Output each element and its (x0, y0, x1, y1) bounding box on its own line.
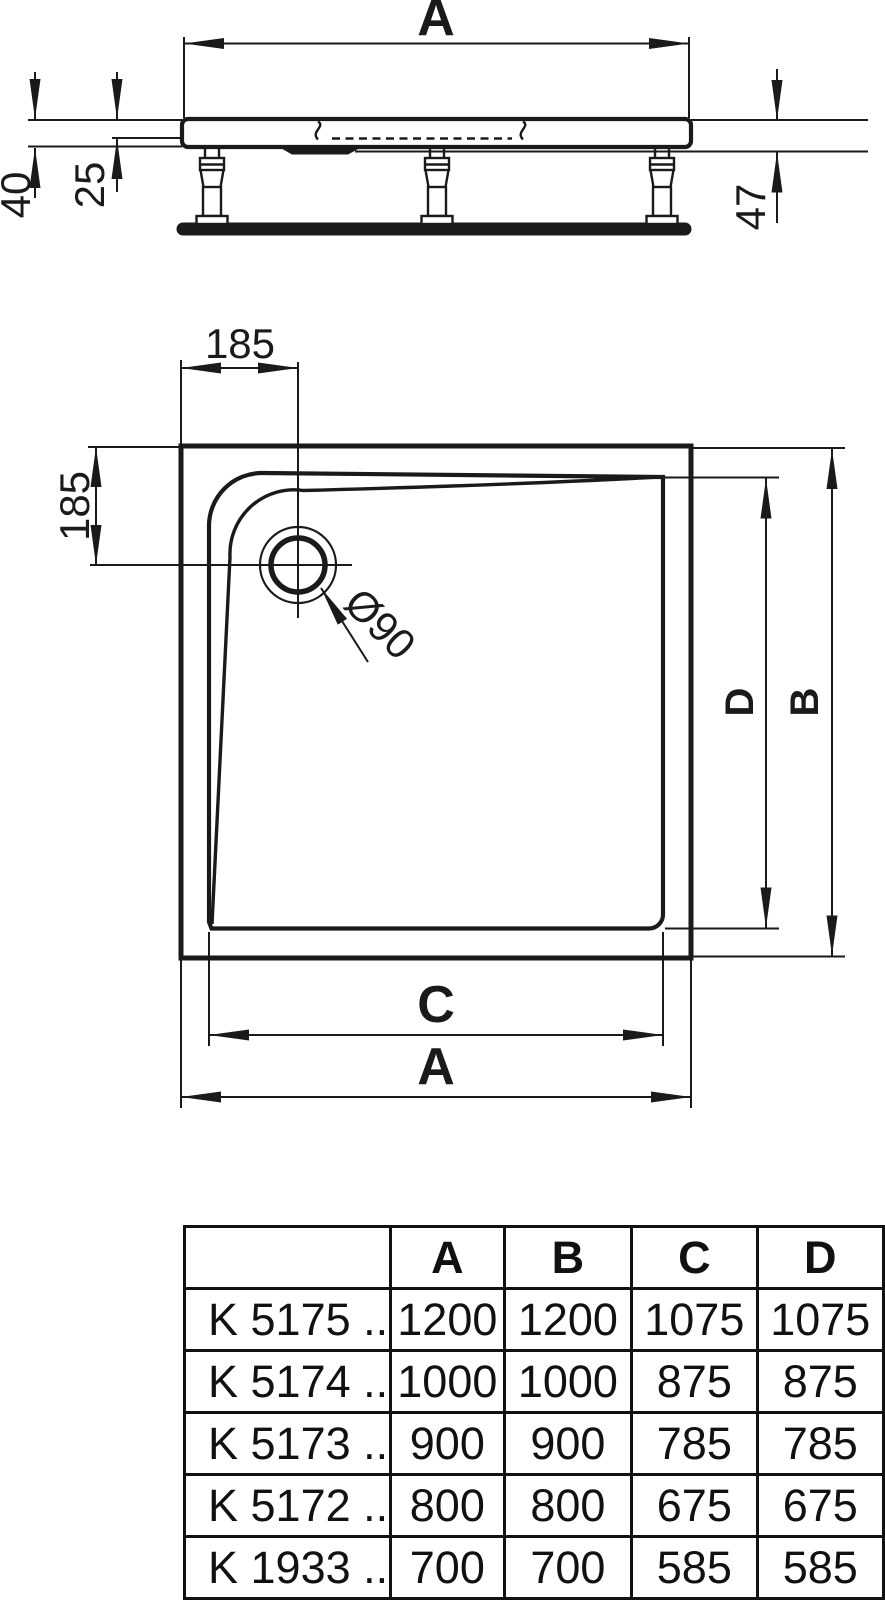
value-cell: 700 (390, 1537, 504, 1599)
tray-inner-rim (209, 473, 663, 929)
table-header-row: A B C D (185, 1227, 884, 1289)
tray-section-outline (182, 119, 691, 147)
value-cell: 875 (632, 1351, 757, 1413)
break-mark (316, 122, 321, 140)
header-A: A (390, 1227, 504, 1289)
value-cell: 1075 (632, 1289, 757, 1351)
value-cell: 785 (632, 1413, 757, 1475)
value-cell: 675 (632, 1475, 757, 1537)
dim-label-drain-diameter: Ø90 (336, 579, 425, 668)
header-C: C (632, 1227, 757, 1289)
value-cell: 585 (757, 1537, 883, 1599)
value-cell: 800 (504, 1475, 631, 1537)
header-D: D (757, 1227, 883, 1289)
model-cell: K 5174 .. (185, 1351, 391, 1413)
value-cell: 1000 (390, 1351, 504, 1413)
dim-label-40: 40 (0, 172, 39, 219)
value-cell: 1200 (390, 1289, 504, 1351)
dimension-table: A B C D K 5175 .. 1200 1200 1075 1075 K … (183, 1225, 885, 1600)
dim-label-185-left: 185 (51, 471, 98, 541)
adjustable-foot (647, 147, 678, 224)
dim-label-A: A (417, 0, 455, 47)
table-row: K 5174 .. 1000 1000 875 875 (185, 1351, 884, 1413)
value-cell: 675 (757, 1475, 883, 1537)
dim-label-B: B (783, 688, 827, 717)
table-row: K 5175 .. 1200 1200 1075 1075 (185, 1289, 884, 1351)
header-model (185, 1227, 391, 1289)
value-cell: 875 (757, 1351, 883, 1413)
dim-label-47: 47 (727, 184, 774, 231)
model-cell: K 5175 .. (185, 1289, 391, 1351)
model-cell: K 5173 .. (185, 1413, 391, 1475)
value-cell: 1000 (504, 1351, 631, 1413)
plan-view: 185 185 Ø90 D B C A (51, 320, 845, 1108)
header-B: B (504, 1227, 631, 1289)
value-cell: 700 (504, 1537, 631, 1599)
tray-outer-edge (181, 446, 691, 958)
adjustable-foot (197, 147, 228, 224)
value-cell: 900 (390, 1413, 504, 1475)
dim-label-185-top: 185 (205, 320, 275, 367)
model-cell: K 1933 .. (185, 1537, 391, 1599)
dim-label-25: 25 (66, 162, 113, 209)
value-cell: 785 (757, 1413, 883, 1475)
dim-label-A-plan: A (417, 1038, 455, 1096)
dim-label-D: D (718, 688, 762, 717)
model-cell: K 5172 .. (185, 1475, 391, 1537)
table-row: K 5173 .. 900 900 785 785 (185, 1413, 884, 1475)
value-cell: 1075 (757, 1289, 883, 1351)
value-cell: 585 (632, 1537, 757, 1599)
table-row: K 5172 .. 800 800 675 675 (185, 1475, 884, 1537)
dim-label-C: C (417, 976, 455, 1034)
value-cell: 900 (504, 1413, 631, 1475)
adjustable-foot (422, 147, 453, 224)
value-cell: 1200 (504, 1289, 631, 1351)
break-mark (521, 122, 526, 140)
table-row: K 1933 .. 700 700 585 585 (185, 1537, 884, 1599)
side-view: A 40 25 47 (0, 0, 868, 230)
value-cell: 800 (390, 1475, 504, 1537)
